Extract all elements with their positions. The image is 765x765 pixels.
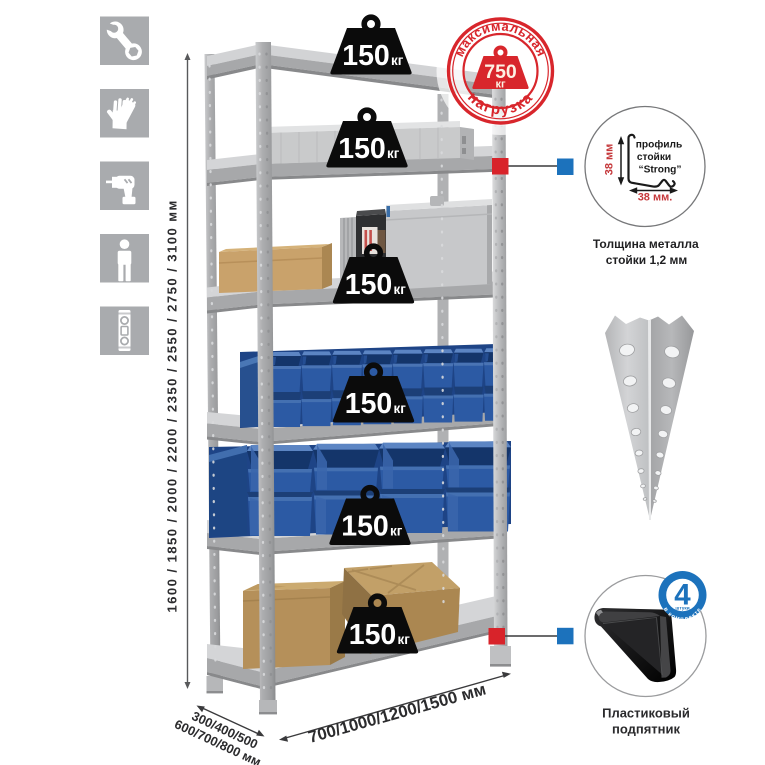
svg-text:стойки 1,2 мм: стойки 1,2 мм bbox=[606, 253, 688, 267]
svg-text:38 мм: 38 мм bbox=[604, 144, 616, 176]
svg-text:1600 / 1850 / 2000 / 2200 / 23: 1600 / 1850 / 2000 / 2200 / 2350 / 2550 … bbox=[165, 199, 180, 612]
svg-text:Толщина металла: Толщина металла bbox=[593, 237, 699, 251]
svg-text:стойки: стойки bbox=[637, 152, 671, 163]
svg-text:штуки: штуки bbox=[675, 605, 689, 610]
svg-text:Пластиковый: Пластиковый bbox=[602, 706, 690, 721]
svg-text:кг: кг bbox=[495, 79, 506, 91]
svg-text:“Strong”: “Strong” bbox=[638, 165, 681, 176]
svg-text:профиль: профиль bbox=[636, 139, 683, 151]
svg-text:подпятник: подпятник bbox=[612, 722, 681, 737]
svg-text:700/1000/1200/1500 мм: 700/1000/1200/1500 мм bbox=[306, 680, 488, 747]
svg-text:38 мм.: 38 мм. bbox=[638, 192, 673, 204]
